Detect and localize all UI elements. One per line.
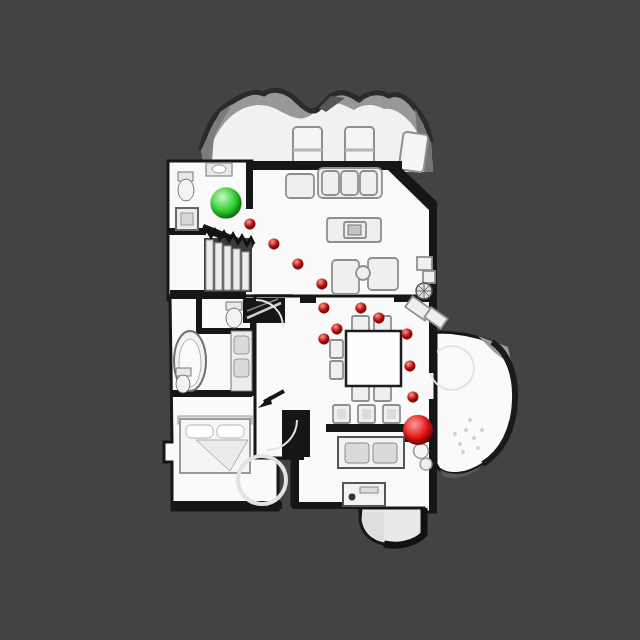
porch <box>360 508 424 545</box>
floorplan-render <box>0 0 640 640</box>
floor-fan <box>416 283 432 299</box>
stool-seats <box>337 409 396 419</box>
dining-table <box>346 331 401 386</box>
tv <box>348 225 361 235</box>
deck-chair <box>398 132 428 173</box>
kitchen-counter <box>338 437 404 468</box>
laundry-appliance <box>343 483 385 506</box>
map-viewport[interactable] <box>0 0 640 640</box>
